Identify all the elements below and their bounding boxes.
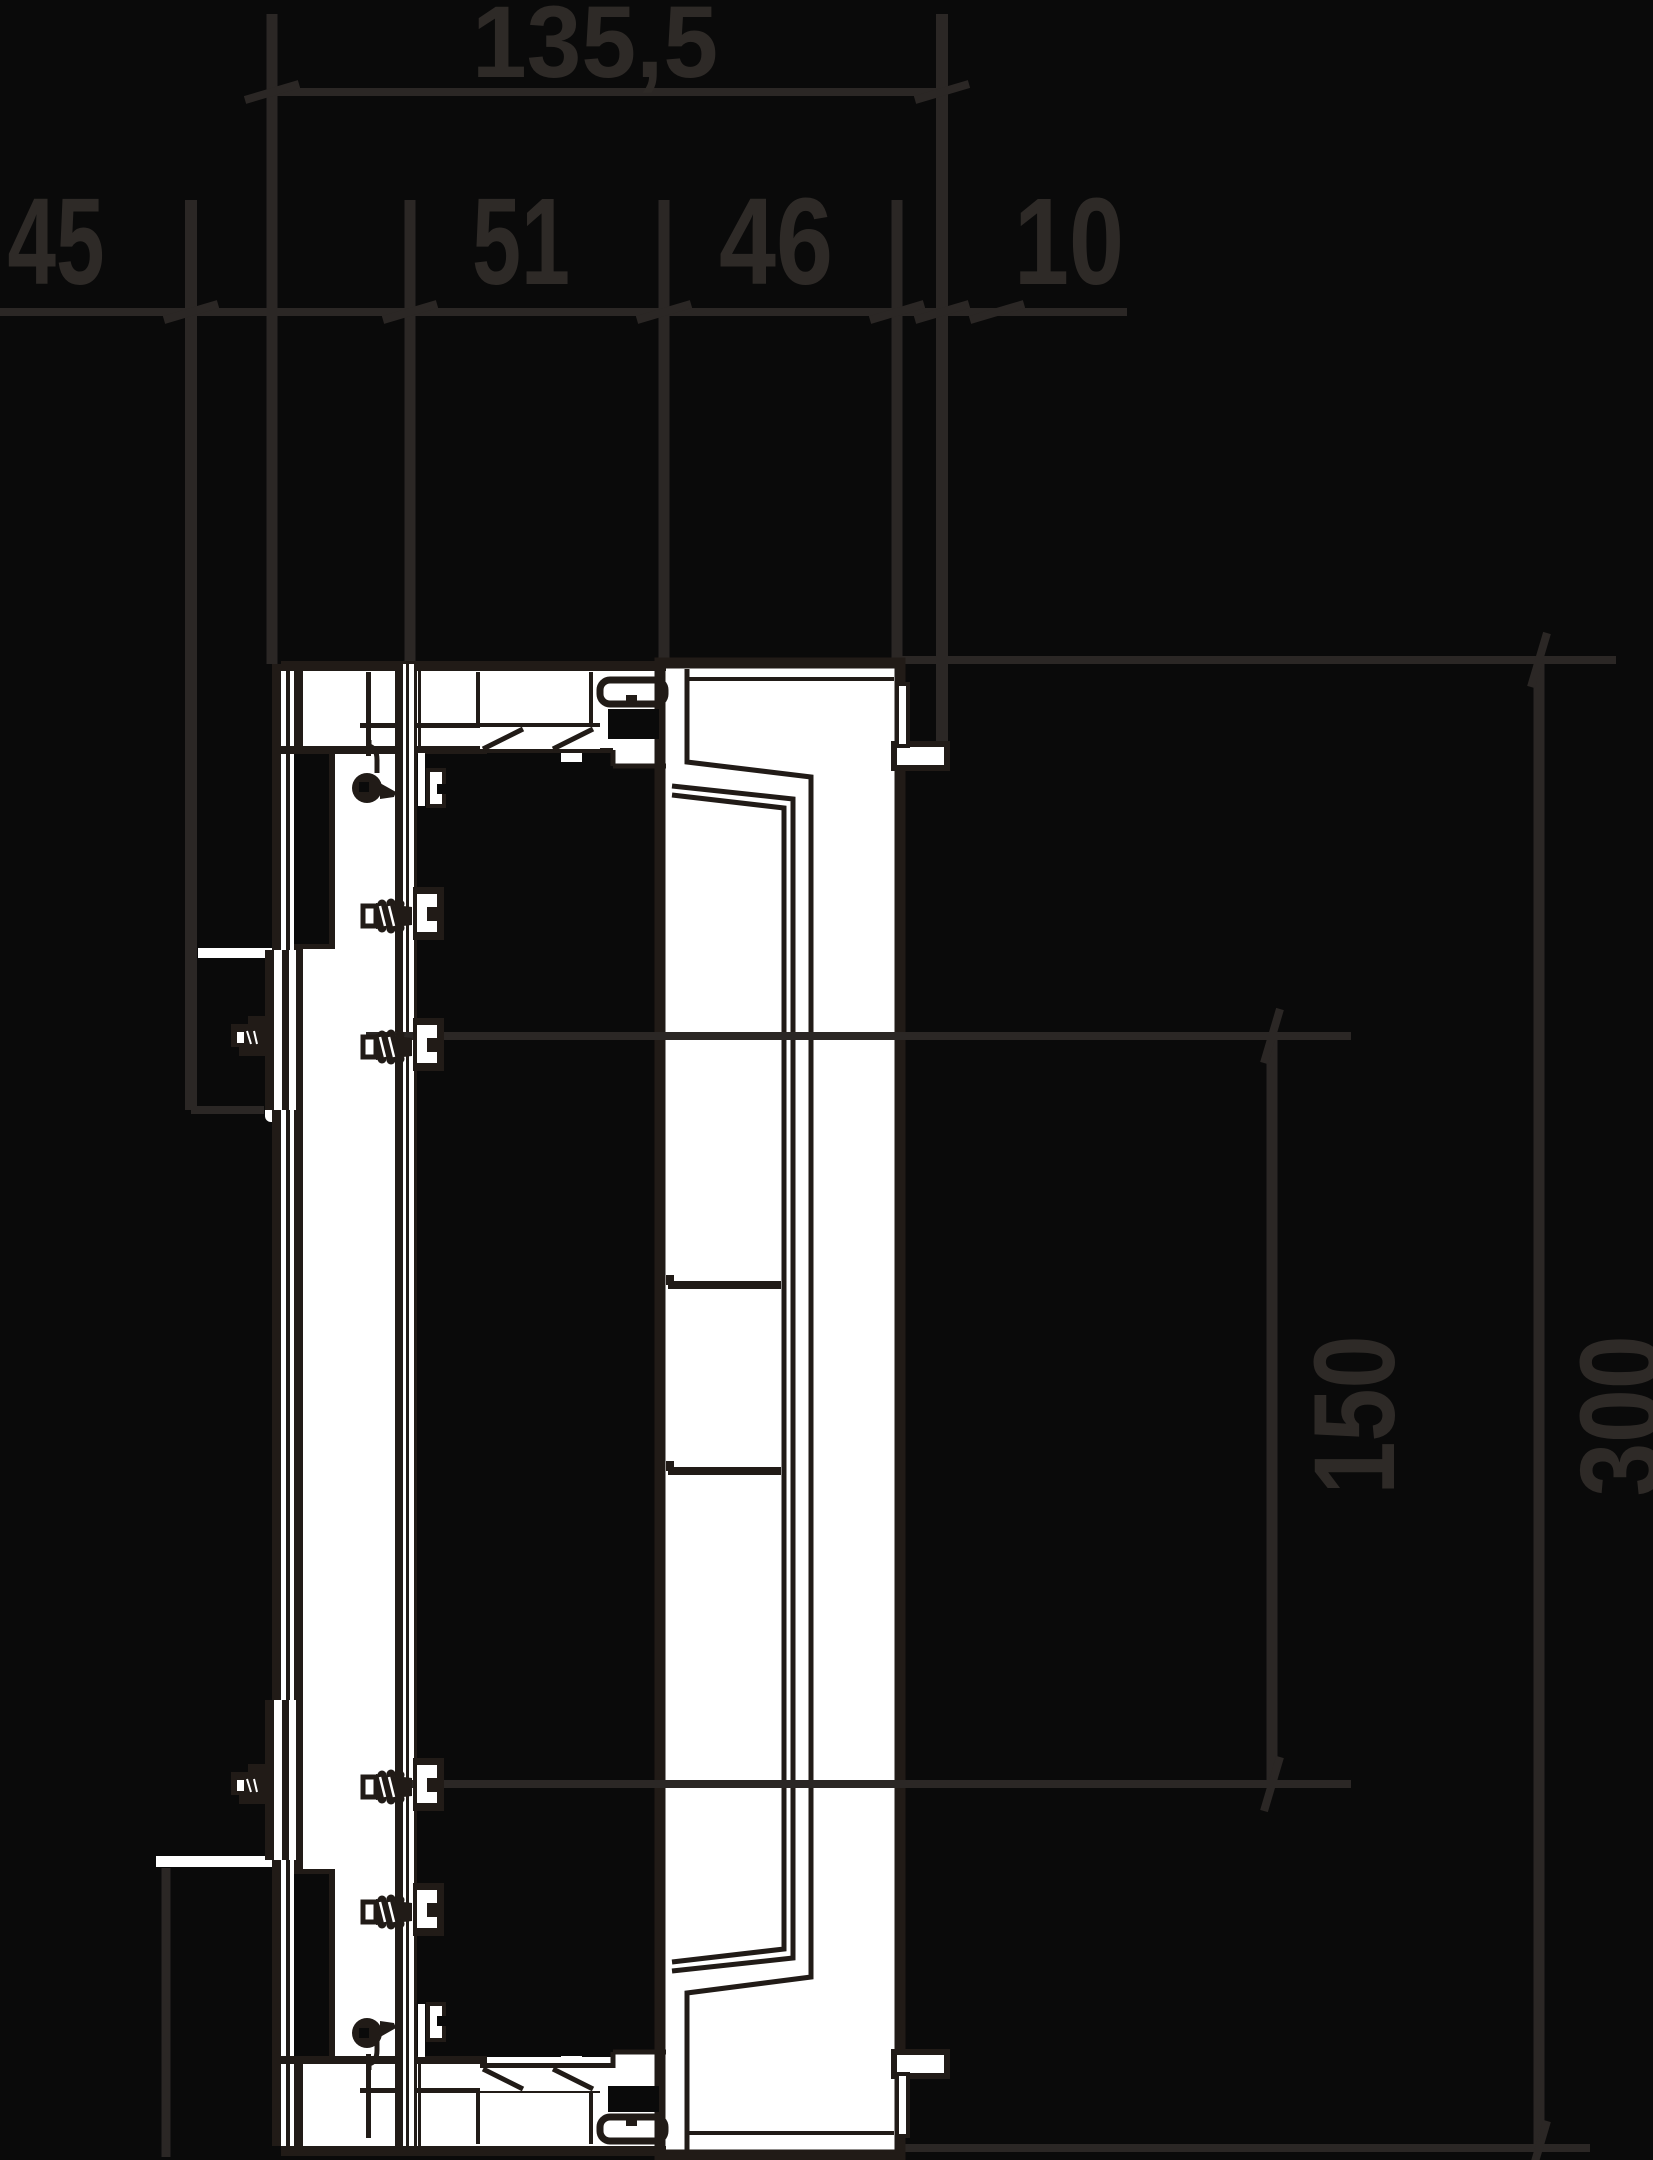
- svg-text:300: 300: [1557, 1336, 1653, 1497]
- svg-text:45: 45: [8, 174, 105, 311]
- svg-text:51: 51: [472, 174, 570, 311]
- svg-text:150: 150: [1291, 1336, 1419, 1495]
- svg-text:135,5: 135,5: [472, 0, 718, 99]
- svg-text:10: 10: [1014, 174, 1124, 311]
- svg-text:46: 46: [719, 174, 833, 311]
